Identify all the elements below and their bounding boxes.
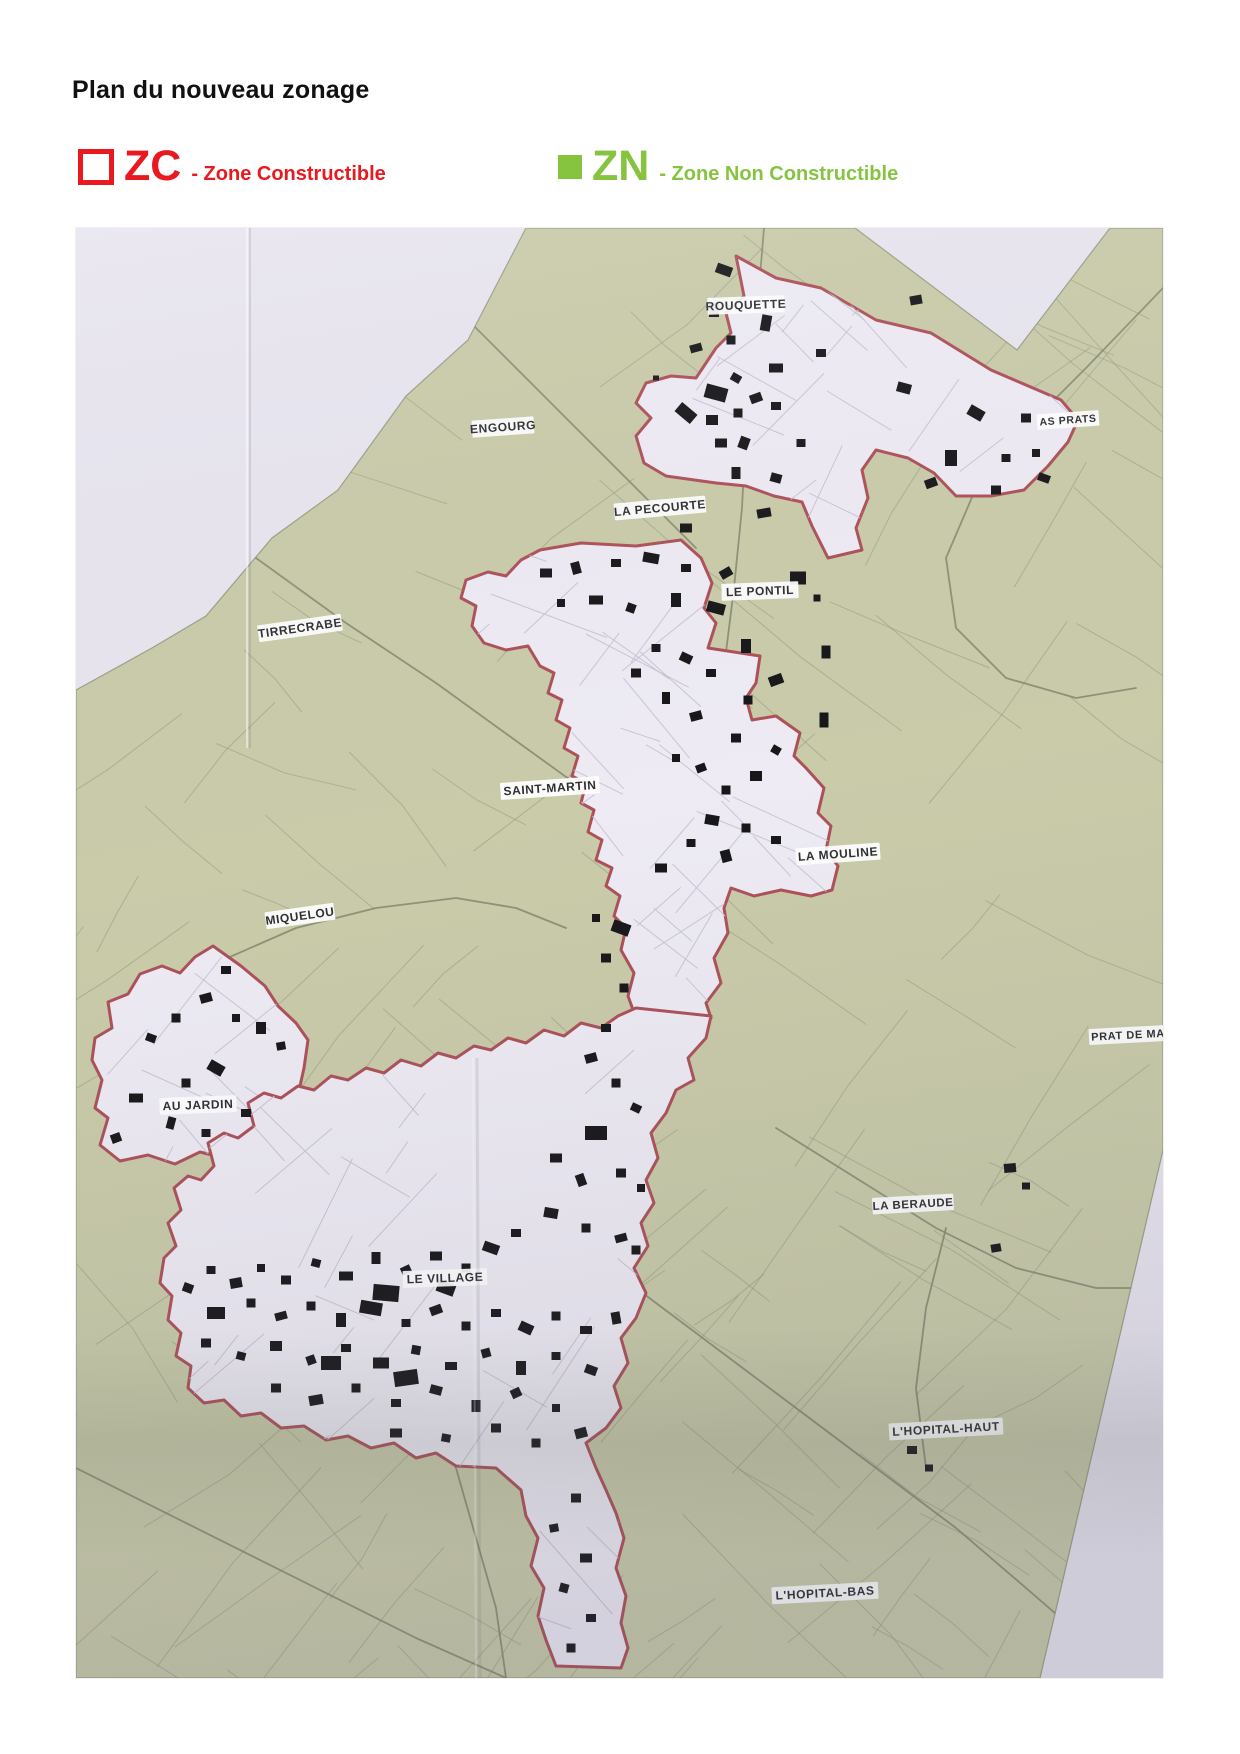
page-title: Plan du nouveau zonage <box>72 76 370 105</box>
zn-filled-square-icon <box>558 155 582 179</box>
zc-code: ZC <box>124 145 181 188</box>
zn-code: ZN <box>592 145 649 188</box>
legend: ZC - Zone Constructible ZN - Zone Non Co… <box>0 143 1240 195</box>
zoning-map-photo: ROUQUETTEAS PRATSENGOURGLA PECOURTELE PO… <box>76 228 1163 1678</box>
photo-lighting-overlay <box>76 228 1163 1678</box>
zn-label: - Zone Non Constructible <box>659 163 898 186</box>
legend-item-zc: ZC - Zone Constructible <box>78 145 386 188</box>
legend-item-zn: ZN - Zone Non Constructible <box>558 145 898 188</box>
zc-open-square-icon <box>78 149 114 185</box>
zoning-map-svg: ROUQUETTEAS PRATSENGOURGLA PECOURTELE PO… <box>76 228 1163 1678</box>
zc-label: - Zone Constructible <box>191 163 385 186</box>
